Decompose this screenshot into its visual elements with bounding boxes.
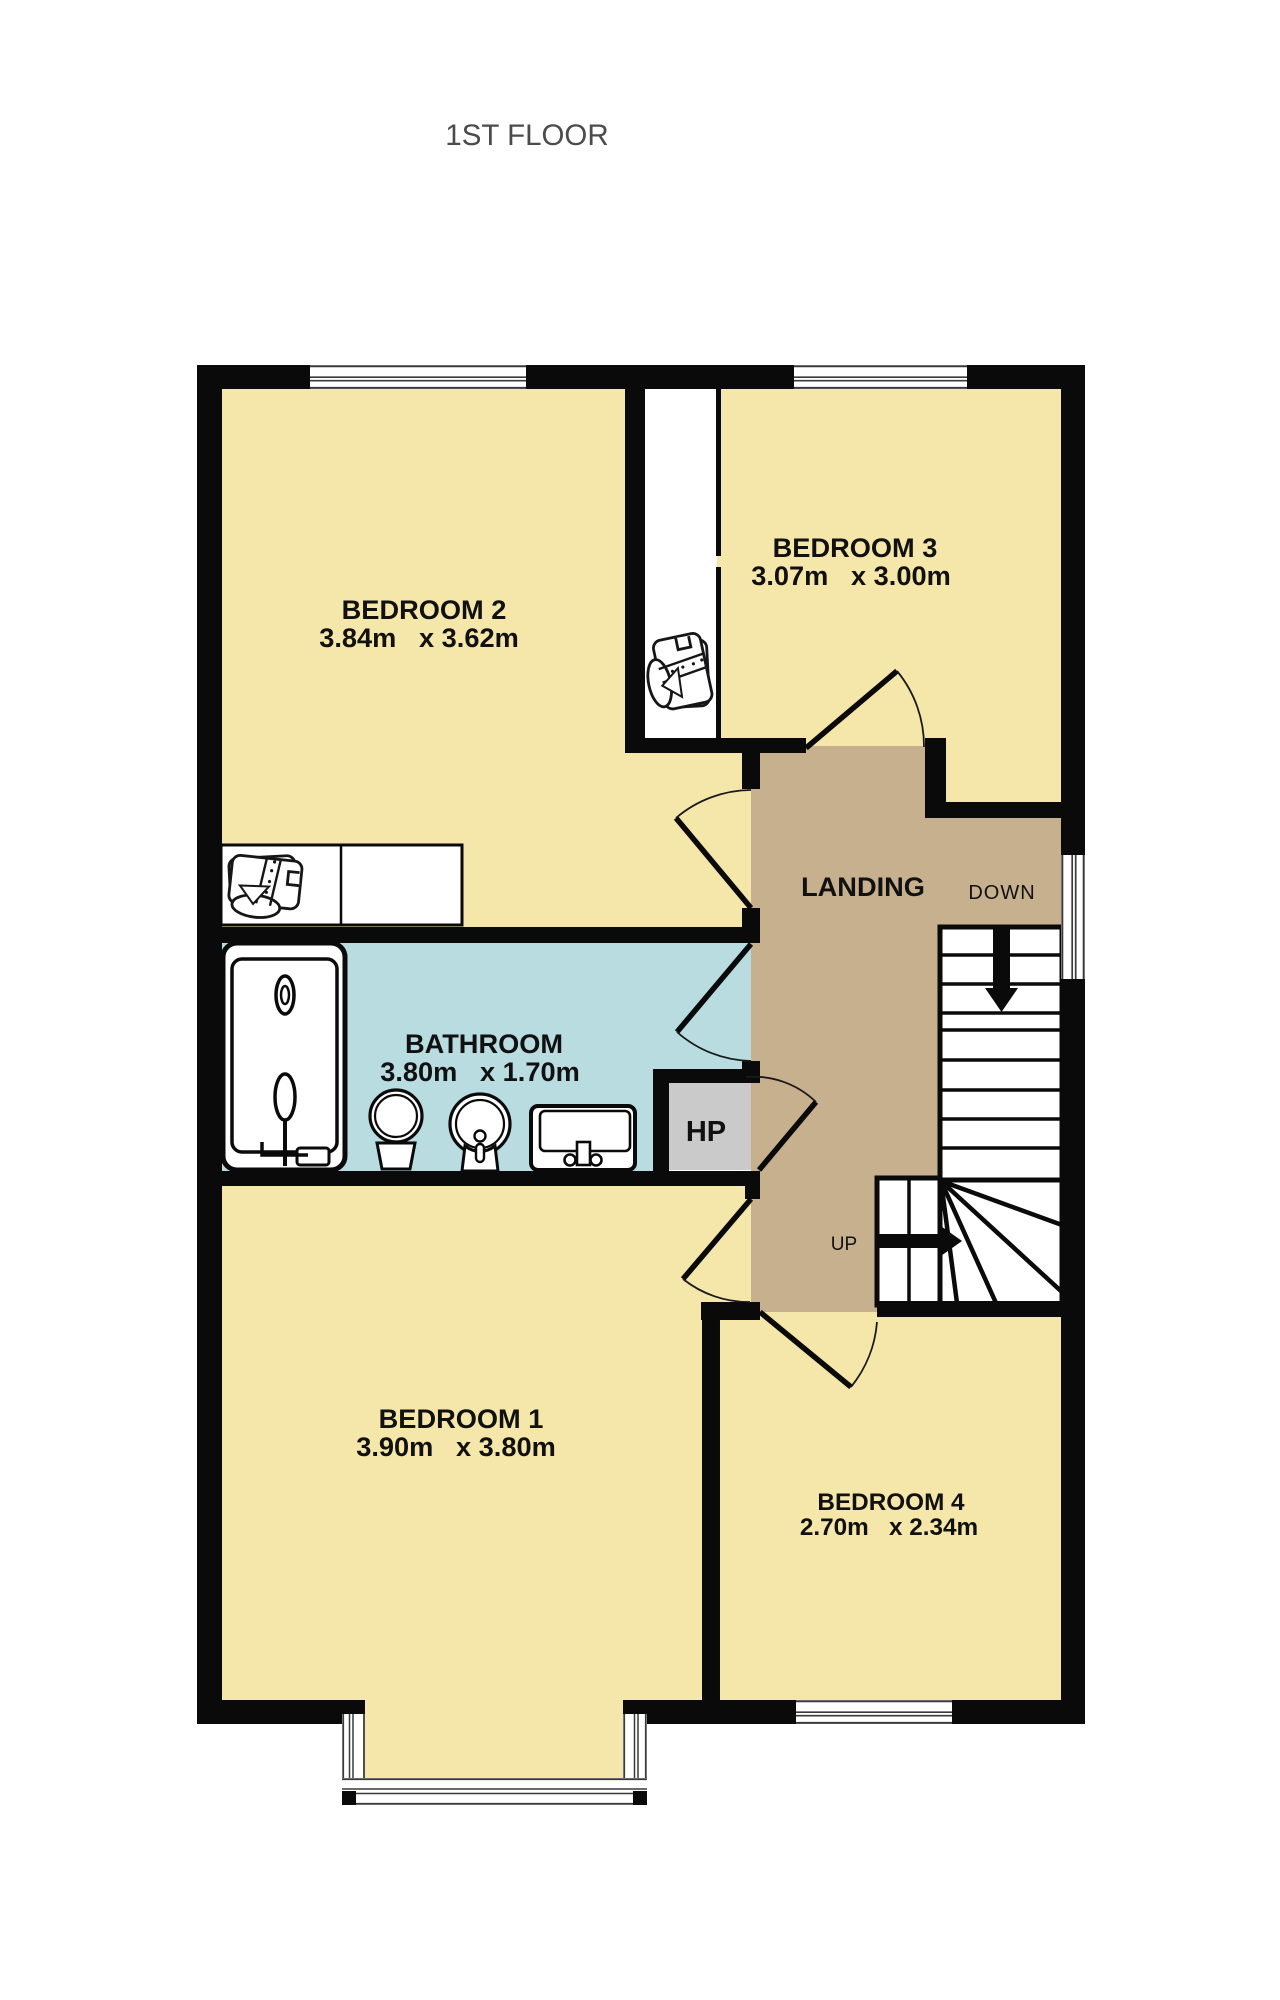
svg-text:3.90m x 3.80m: 3.90m x 3.80m	[356, 1431, 556, 1462]
svg-text:3.80m x 1.70m: 3.80m x 1.70m	[380, 1056, 580, 1087]
svg-text:UP: UP	[831, 1234, 857, 1255]
svg-text:BEDROOM 3: BEDROOM 3	[773, 532, 938, 563]
svg-text:3.07m x 3.00m: 3.07m x 3.00m	[751, 560, 951, 591]
svg-text:1ST FLOOR: 1ST FLOOR	[445, 119, 608, 152]
svg-text:LANDING: LANDING	[801, 871, 925, 902]
svg-text:BEDROOM 1: BEDROOM 1	[379, 1403, 544, 1434]
svg-text:BATHROOM: BATHROOM	[405, 1028, 563, 1059]
svg-text:3.84m x 3.62m: 3.84m x 3.62m	[319, 622, 519, 653]
svg-text:BEDROOM 2: BEDROOM 2	[342, 594, 507, 625]
svg-text:HP: HP	[686, 1116, 726, 1148]
svg-text:DOWN: DOWN	[968, 882, 1035, 904]
svg-text:BEDROOM 4: BEDROOM 4	[817, 1489, 965, 1516]
svg-text:2.70m x 2.34m: 2.70m x 2.34m	[800, 1514, 978, 1541]
